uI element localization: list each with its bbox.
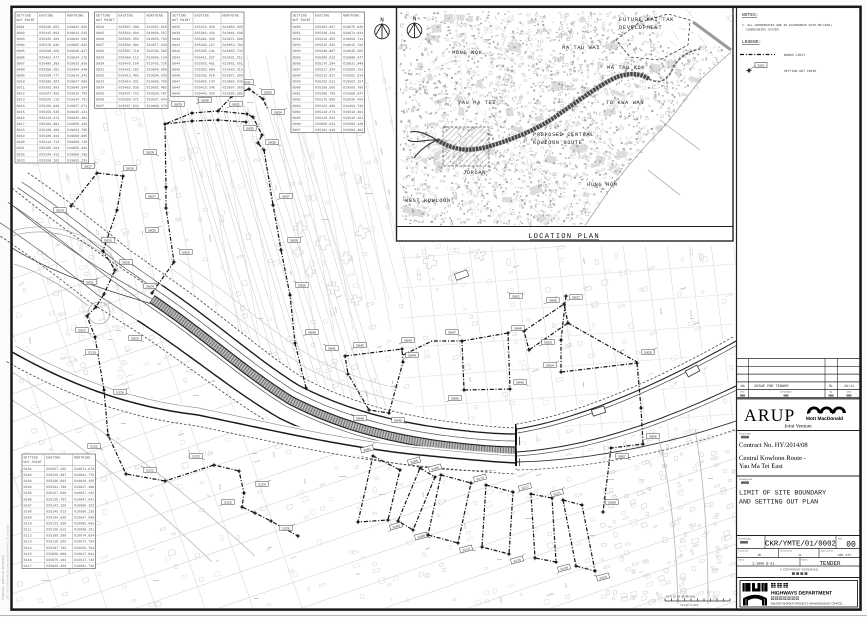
svg-text:WEST KOWLOON: WEST KOWLOON <box>405 198 451 204</box>
svg-text:S126: S126 <box>282 527 290 531</box>
svg-text:835383.451: 835383.451 <box>195 61 215 66</box>
svg-text:S020: S020 <box>17 140 25 145</box>
svg-text:Yau Ma Tei East: Yau Ma Tei East <box>739 463 783 470</box>
svg-text:SCALE 1:1000: SCALE 1:1000 <box>680 603 699 607</box>
svg-text:835123.260: 835123.260 <box>46 522 66 527</box>
svg-text:S023: S023 <box>131 337 139 341</box>
svg-text:819674.634: 819674.634 <box>343 31 363 36</box>
svg-text:819690.748: 819690.748 <box>67 140 87 145</box>
svg-text:S048: S048 <box>514 327 522 331</box>
svg-text:S019: S019 <box>17 134 25 139</box>
svg-text:SETTING: SETTING <box>24 456 38 461</box>
svg-text:EASTING: EASTING <box>46 456 60 461</box>
svg-text:819656.426: 819656.426 <box>67 122 87 127</box>
svg-text:S017: S017 <box>84 165 92 169</box>
svg-text:S124: S124 <box>258 483 266 487</box>
svg-text:835228.119: 835228.119 <box>39 98 59 103</box>
svg-text:835236.319: 835236.319 <box>315 31 335 36</box>
svg-text:S123: S123 <box>192 455 200 459</box>
svg-text:818874.024: 818874.024 <box>74 534 94 539</box>
svg-text:819571.389: 819571.389 <box>223 74 243 79</box>
svg-text:S025: S025 <box>96 31 104 36</box>
svg-text:835113.474: 835113.474 <box>39 116 59 121</box>
svg-text:835358.664: 835358.664 <box>195 67 215 72</box>
svg-text:819518.161: 819518.161 <box>343 116 363 121</box>
svg-text:819655.783: 819655.783 <box>147 37 167 42</box>
svg-text:819614.242: 819614.242 <box>67 74 87 79</box>
svg-text:835191.700: 835191.700 <box>46 485 66 490</box>
svg-text:S043: S043 <box>172 55 180 60</box>
svg-text:Description: Description <box>781 391 793 394</box>
svg-text:S037: S037 <box>96 104 104 109</box>
svg-text:S027: S027 <box>96 43 104 48</box>
svg-text:835392.127: 835392.127 <box>195 43 215 48</box>
svg-text:835502.901: 835502.901 <box>119 43 139 48</box>
svg-text:819645.121: 819645.121 <box>67 110 87 115</box>
svg-text:Mott MacDonald: Mott MacDonald <box>806 416 843 422</box>
svg-text:819659.995: 819659.995 <box>223 25 243 30</box>
svg-text:S050: S050 <box>293 25 301 30</box>
svg-text:S022: S022 <box>17 152 25 157</box>
svg-text:835219.037: 835219.037 <box>315 74 335 79</box>
svg-text:S114: S114 <box>24 546 32 551</box>
svg-text:835232.611: 835232.611 <box>315 80 335 85</box>
svg-text:835437.722: 835437.722 <box>119 92 139 97</box>
svg-text:819526.454: 819526.454 <box>343 98 363 103</box>
svg-text:835236.862: 835236.862 <box>46 479 66 484</box>
svg-text:835186.049: 835186.049 <box>39 104 59 109</box>
svg-text:835257.188: 835257.188 <box>46 467 66 472</box>
svg-text:819631.211: 819631.211 <box>223 55 243 60</box>
svg-text:S060: S060 <box>293 86 301 91</box>
svg-text:MONG KOK: MONG KOK <box>452 50 483 56</box>
svg-text:Checked By: Checked By <box>780 550 793 553</box>
svg-text:EASTING: EASTING <box>315 14 329 19</box>
svg-text:819057.195: 819057.195 <box>74 491 94 496</box>
svg-text:S016: S016 <box>126 167 134 171</box>
svg-text:835302.803: 835302.803 <box>39 86 59 91</box>
svg-text:S044: S044 <box>408 354 416 358</box>
svg-text:J:\217766 CKR Tender Documenta: J:\217766 CKR Tender Documentation\CKR-Y… <box>7 524 10 600</box>
svg-text:S035: S035 <box>246 127 254 131</box>
svg-text:EASTING: EASTING <box>119 14 133 19</box>
svg-text:835453.836: 835453.836 <box>119 86 139 91</box>
svg-text:835419.246: 835419.246 <box>195 86 215 91</box>
svg-text:835110.582: 835110.582 <box>315 116 335 121</box>
svg-text:© COPYRIGHT RESERVED: © COPYRIGHT RESERVED <box>780 568 819 572</box>
svg-text:OUT POINT: OUT POINT <box>172 18 190 23</box>
svg-text:S031: S031 <box>232 103 240 107</box>
svg-text:S067: S067 <box>293 128 301 133</box>
svg-text:819631.708: 819631.708 <box>67 128 87 133</box>
svg-text:S025: S025 <box>182 251 190 255</box>
svg-text:819585.709: 819585.709 <box>343 86 363 91</box>
svg-text:835403.143: 835403.143 <box>195 80 215 85</box>
svg-text:835144.628: 835144.628 <box>46 516 66 521</box>
svg-text:TO KWA WAN: TO KWA WAN <box>606 100 644 106</box>
svg-text:S021: S021 <box>17 146 25 151</box>
svg-text:818890.181: 818890.181 <box>74 528 94 533</box>
svg-text:PROPOSED CENTRAL: PROPOSED CENTRAL <box>533 132 594 138</box>
svg-text:KML KTC: KML KTC <box>838 553 851 557</box>
svg-text:Central Kowloon Route -: Central Kowloon Route - <box>739 455 806 462</box>
svg-text:S037: S037 <box>282 195 290 199</box>
svg-text:EASTING: EASTING <box>195 14 209 19</box>
svg-text:S117: S117 <box>24 564 32 569</box>
svg-text:CKR/YMTE/01/0002: CKR/YMTE/01/0002 <box>765 540 836 549</box>
svg-text:835306.283: 835306.283 <box>39 80 59 85</box>
svg-text:S017: S017 <box>17 122 25 127</box>
svg-text:819589.153: 819589.153 <box>343 67 363 72</box>
svg-text:Approved By: Approved By <box>821 550 834 553</box>
svg-text:MAJOR WORKS PROJECT MANAGEMENT: MAJOR WORKS PROJECT MANAGEMENT OFFICE <box>771 602 843 606</box>
svg-text:835507.380: 835507.380 <box>119 25 139 30</box>
svg-text:S110: S110 <box>24 522 32 527</box>
svg-text:819694.839: 819694.839 <box>147 74 167 79</box>
svg-text:Joint Venture: Joint Venture <box>784 424 812 430</box>
svg-text:KOWLOON ROUTE: KOWLOON ROUTE <box>533 140 583 146</box>
svg-text:818873.784: 818873.784 <box>74 540 94 545</box>
svg-text:S108: S108 <box>24 509 32 514</box>
svg-text:EASTING: EASTING <box>39 14 53 19</box>
svg-text:S111: S111 <box>24 528 32 533</box>
svg-text:S031: S031 <box>96 67 104 72</box>
svg-text:S008: S008 <box>17 67 25 72</box>
svg-text:SETTING: SETTING <box>96 14 110 19</box>
svg-text:S028: S028 <box>146 151 154 155</box>
svg-text:819708.562: 819708.562 <box>147 49 167 54</box>
svg-text:819609.378: 819609.378 <box>147 104 167 109</box>
svg-text:819597.815: 819597.815 <box>147 25 167 30</box>
svg-text:819566.047: 819566.047 <box>343 92 363 97</box>
svg-text:S120: S120 <box>116 391 124 395</box>
svg-text:ISSUE FOR TENDER: ISSUE FOR TENDER <box>754 384 789 389</box>
svg-text:818960.125: 818960.125 <box>74 509 94 514</box>
svg-text:819047.941: 819047.941 <box>74 497 94 502</box>
svg-text:S115: S115 <box>24 552 32 557</box>
svg-text:Scale: Scale <box>739 559 745 562</box>
svg-text:S102: S102 <box>24 473 32 478</box>
svg-text:S002: S002 <box>17 31 25 36</box>
svg-text:819653.703: 819653.703 <box>223 43 243 48</box>
svg-text:NOTES:: NOTES: <box>742 12 759 18</box>
svg-text:SETTING: SETTING <box>172 14 186 19</box>
svg-text:S049: S049 <box>516 381 524 385</box>
svg-text:SETTING: SETTING <box>17 14 31 19</box>
svg-text:S033: S033 <box>96 80 104 85</box>
svg-text:835219.455: 835219.455 <box>315 37 335 42</box>
svg-text:835414.831: 835414.831 <box>119 80 139 85</box>
svg-text:S046: S046 <box>356 417 364 421</box>
svg-text:819690.768: 819690.768 <box>147 80 167 85</box>
svg-text:N: N <box>413 16 417 23</box>
svg-text:819622.959: 819622.959 <box>67 25 87 30</box>
svg-text:819692.225: 819692.225 <box>67 158 87 163</box>
svg-text:835390.571: 835390.571 <box>119 98 139 103</box>
svg-text:835215.282: 835215.282 <box>315 43 335 48</box>
svg-text:819669.766: 819669.766 <box>67 152 87 157</box>
svg-text:S014: S014 <box>17 104 25 109</box>
svg-text:S041: S041 <box>172 43 180 48</box>
svg-text:S061: S061 <box>293 92 301 97</box>
svg-text:S122: S122 <box>146 469 154 473</box>
svg-text:S035: S035 <box>96 92 104 97</box>
svg-text:S056: S056 <box>549 299 557 303</box>
svg-text:835101.949: 835101.949 <box>315 128 335 133</box>
svg-text:835411.537: 835411.537 <box>195 55 215 60</box>
svg-text:N: N <box>380 17 384 24</box>
svg-text:S023: S023 <box>17 158 25 163</box>
svg-text:OUT POINT: OUT POINT <box>293 18 311 23</box>
svg-text:Drawing title: Drawing title <box>739 478 753 481</box>
svg-text:819650.714: 819650.714 <box>343 37 363 42</box>
svg-text:S024: S024 <box>146 285 154 289</box>
svg-text:835387.633: 835387.633 <box>119 104 139 109</box>
svg-text:YAU MA TEI: YAU MA TEI <box>458 100 496 106</box>
svg-text:LEGEND:: LEGEND: <box>742 39 761 45</box>
svg-text:S119: S119 <box>88 351 96 355</box>
svg-text:10 0 10 20 30 40 50m: 10 0 10 20 30 40 50m <box>666 595 696 599</box>
svg-text:819627.956: 819627.956 <box>67 80 87 85</box>
svg-text:835438.389: 835438.389 <box>39 37 59 42</box>
svg-text:S066: S066 <box>293 122 301 127</box>
svg-text:819682.402: 819682.402 <box>147 86 167 91</box>
svg-text:MA TAU WAI: MA TAU WAI <box>562 45 600 51</box>
svg-text:818917.041: 818917.041 <box>74 552 94 557</box>
svg-text:OUT POINT: OUT POINT <box>17 18 35 23</box>
svg-text:S011: S011 <box>17 86 25 91</box>
svg-text:S055: S055 <box>644 351 652 355</box>
svg-text:835144.412: 835144.412 <box>39 152 59 157</box>
svg-text:819600.247: 819600.247 <box>343 55 363 60</box>
svg-text:S058: S058 <box>293 74 301 79</box>
svg-text:S001: S001 <box>17 25 25 30</box>
svg-text:JL: JL <box>798 553 802 557</box>
svg-text:Printed by : DWTU on 30/11/201: Printed by : DWTU on 30/11/2013 <box>1 555 5 600</box>
svg-text:30/11: 30/11 <box>844 384 854 389</box>
svg-text:NORTHING: NORTHING <box>147 14 163 19</box>
svg-text:S020: S020 <box>122 261 130 265</box>
svg-text:NORTHING: NORTHING <box>74 456 90 461</box>
svg-text:819699.134: 819699.134 <box>147 55 167 60</box>
svg-text:819631.040: 819631.040 <box>343 61 363 66</box>
svg-text:835075.102: 835075.102 <box>46 558 66 563</box>
svg-text:Status: Status <box>802 559 809 562</box>
svg-text:NORTHING: NORTHING <box>67 14 83 19</box>
svg-text:819502.120: 819502.120 <box>343 122 363 127</box>
svg-text:MA TAU KOK: MA TAU KOK <box>607 65 645 71</box>
svg-text:819626.587: 819626.587 <box>147 31 167 36</box>
svg-text:JORDAN: JORDAN <box>463 170 486 176</box>
svg-text:S018: S018 <box>17 128 25 133</box>
svg-text:S045: S045 <box>394 419 402 423</box>
svg-text:835118.285: 835118.285 <box>46 540 66 545</box>
svg-text:818889.764: 818889.764 <box>74 546 94 551</box>
svg-text:S121: S121 <box>90 445 98 449</box>
svg-text:835507.710: 835507.710 <box>119 49 139 54</box>
svg-text:835209.819: 835209.819 <box>315 55 335 60</box>
svg-text:S007: S007 <box>17 61 25 66</box>
svg-text:818909.869: 818909.869 <box>74 522 94 527</box>
svg-text:Drawn By: Drawn By <box>739 550 749 553</box>
svg-text:835128.793: 835128.793 <box>46 497 66 502</box>
svg-text:835452.102: 835452.102 <box>119 67 139 72</box>
svg-text:S051: S051 <box>512 295 520 299</box>
svg-text:835180.101: 835180.101 <box>39 158 59 163</box>
svg-text:819665.028: 819665.028 <box>67 43 87 48</box>
svg-text:DEVELOPMENT: DEVELOPMENT <box>619 25 662 31</box>
svg-text:S057: S057 <box>293 67 301 72</box>
svg-text:S004: S004 <box>17 43 25 48</box>
svg-text:S057: S057 <box>618 455 626 459</box>
svg-text:S063: S063 <box>293 104 301 109</box>
svg-text:835452.477: 835452.477 <box>39 55 59 60</box>
svg-text:SETTING: SETTING <box>293 14 307 19</box>
svg-text:S116: S116 <box>24 558 32 563</box>
svg-text:OUT POINT: OUT POINT <box>24 460 42 465</box>
svg-text:835415.091: 835415.091 <box>39 31 59 36</box>
svg-text:835189.568: 835189.568 <box>315 86 335 91</box>
svg-text:835106.434: 835106.434 <box>39 134 59 139</box>
svg-text:S106: S106 <box>24 497 32 502</box>
svg-text:835105.324: 835105.324 <box>39 146 59 151</box>
svg-text:835476.239: 835476.239 <box>39 43 59 48</box>
svg-text:S034: S034 <box>96 86 104 91</box>
svg-text:S038: S038 <box>172 25 180 30</box>
svg-text:835356.301: 835356.301 <box>39 67 59 72</box>
svg-text:S036: S036 <box>268 141 276 145</box>
svg-text:S105: S105 <box>24 491 32 496</box>
svg-text:835143.158: 835143.158 <box>46 503 66 508</box>
svg-text:S064: S064 <box>293 110 301 115</box>
svg-text:HIGHWAYS DEPARTMENT: HIGHWAYS DEPARTMENT <box>771 591 832 597</box>
svg-text:Contract No. HY/2014/08: Contract No. HY/2014/08 <box>739 442 808 449</box>
svg-text:S045: S045 <box>172 67 180 72</box>
svg-text:S029: S029 <box>96 55 104 60</box>
svg-text:S050: S050 <box>451 397 459 401</box>
svg-text:S042: S042 <box>172 49 180 54</box>
svg-text:835107.702: 835107.702 <box>46 546 66 551</box>
svg-text:818917.738: 818917.738 <box>74 558 94 563</box>
svg-text:819602.245: 819602.245 <box>223 80 243 85</box>
svg-text:819632.401: 819632.401 <box>67 116 87 121</box>
svg-text:819657.871: 819657.871 <box>67 104 87 109</box>
svg-text:S109: S109 <box>24 516 32 521</box>
svg-text:JB: JB <box>757 553 761 557</box>
svg-text:835086.960: 835086.960 <box>46 552 66 557</box>
svg-text:835175.969: 835175.969 <box>315 98 335 103</box>
svg-text:HUNG HOM: HUNG HOM <box>587 182 618 188</box>
svg-text:835548.858: 835548.858 <box>119 37 139 42</box>
svg-text:S107: S107 <box>24 503 32 508</box>
svg-text:S040: S040 <box>172 37 180 42</box>
svg-text:819624.791: 819624.791 <box>67 98 87 103</box>
svg-text:819027.106: 819027.106 <box>74 485 94 490</box>
svg-text:S125: S125 <box>224 501 232 505</box>
svg-text:S047: S047 <box>448 331 456 335</box>
svg-text:S065: S065 <box>293 116 301 121</box>
svg-text:819659.394: 819659.394 <box>67 146 87 151</box>
svg-text:835379.958: 835379.958 <box>195 25 215 30</box>
svg-text:S013: S013 <box>17 98 25 103</box>
svg-text:S049: S049 <box>172 92 180 97</box>
svg-text:S041: S041 <box>328 347 336 351</box>
svg-text:835217.284: 835217.284 <box>315 67 335 72</box>
svg-text:S062: S062 <box>293 98 301 103</box>
svg-text:S019: S019 <box>104 239 112 243</box>
svg-text:S028: S028 <box>96 49 104 54</box>
svg-text:819646.927: 819646.927 <box>67 49 87 54</box>
svg-text:S022: S022 <box>78 329 86 333</box>
svg-text:S039: S039 <box>172 31 180 36</box>
svg-text:S036: S036 <box>96 98 104 103</box>
svg-text:S112: S112 <box>24 534 32 539</box>
svg-text:819671.699: 819671.699 <box>223 37 243 42</box>
svg-text:819639.788: 819639.788 <box>67 92 87 97</box>
svg-text:835112.713: 835112.713 <box>39 140 59 145</box>
svg-text:S053: S053 <box>544 341 552 345</box>
svg-text:NORTHING: NORTHING <box>223 14 239 19</box>
svg-text:819613.835: 819613.835 <box>67 31 87 36</box>
svg-text:S030: S030 <box>201 99 209 103</box>
svg-text:S003: S003 <box>17 37 25 42</box>
svg-text:S001: S001 <box>757 63 765 67</box>
svg-text:S005: S005 <box>17 49 25 54</box>
svg-text:819641.836: 819641.836 <box>223 31 243 36</box>
svg-text:835395.810: 835395.810 <box>195 74 215 79</box>
svg-text:S026: S026 <box>148 229 156 233</box>
svg-text:819675.639: 819675.639 <box>343 25 363 30</box>
svg-text:S032: S032 <box>96 74 104 79</box>
svg-text:S009: S009 <box>17 74 25 79</box>
svg-text:819618.703: 819618.703 <box>343 43 363 48</box>
svg-text:S103: S103 <box>24 479 32 484</box>
svg-text:835443.928: 835443.928 <box>195 92 215 97</box>
svg-text:Date: Date <box>847 391 852 394</box>
svg-text:S052: S052 <box>572 296 580 300</box>
svg-text:S010: S010 <box>17 80 25 85</box>
svg-text:S101: S101 <box>24 467 32 472</box>
svg-text:819643.508: 819643.508 <box>67 37 87 42</box>
svg-text:835408.365: 835408.365 <box>39 61 59 66</box>
svg-text:S052: S052 <box>293 37 301 42</box>
svg-text:835395.141: 835395.141 <box>195 49 215 54</box>
svg-text:S029: S029 <box>174 103 182 107</box>
svg-text:819589.205: 819589.205 <box>223 92 243 97</box>
svg-text:835187.560: 835187.560 <box>46 491 66 496</box>
svg-text:S040: S040 <box>308 331 316 335</box>
svg-text:819581.581: 819581.581 <box>223 61 243 66</box>
svg-text:835029.489: 835029.489 <box>46 564 66 569</box>
svg-text:S054: S054 <box>293 49 301 54</box>
svg-text:AND SETTING OUT PLAN: AND SETTING OUT PLAN <box>739 499 818 506</box>
svg-text:S015: S015 <box>17 110 25 115</box>
svg-text:819623.036: 819623.036 <box>67 61 87 66</box>
svg-text:819005.182: 819005.182 <box>74 503 94 508</box>
svg-text:819655.733: 819655.733 <box>223 49 243 54</box>
svg-text:818947.590: 818947.590 <box>74 516 94 521</box>
svg-text:Project title: Project title <box>739 433 751 436</box>
svg-text:S030: S030 <box>96 61 104 66</box>
svg-text:819582.157: 819582.157 <box>343 80 363 85</box>
svg-text:S044: S044 <box>172 61 180 66</box>
svg-text:835120.169: 835120.169 <box>39 128 59 133</box>
svg-text:819010.158: 819010.158 <box>74 479 94 484</box>
svg-text:835490.159: 835490.159 <box>39 49 59 54</box>
svg-text:835239.307: 835239.307 <box>46 473 66 478</box>
svg-text:FUTURE KAI TAK: FUTURE KAI TAK <box>619 17 674 23</box>
svg-text:835436.053: 835436.053 <box>39 25 59 30</box>
